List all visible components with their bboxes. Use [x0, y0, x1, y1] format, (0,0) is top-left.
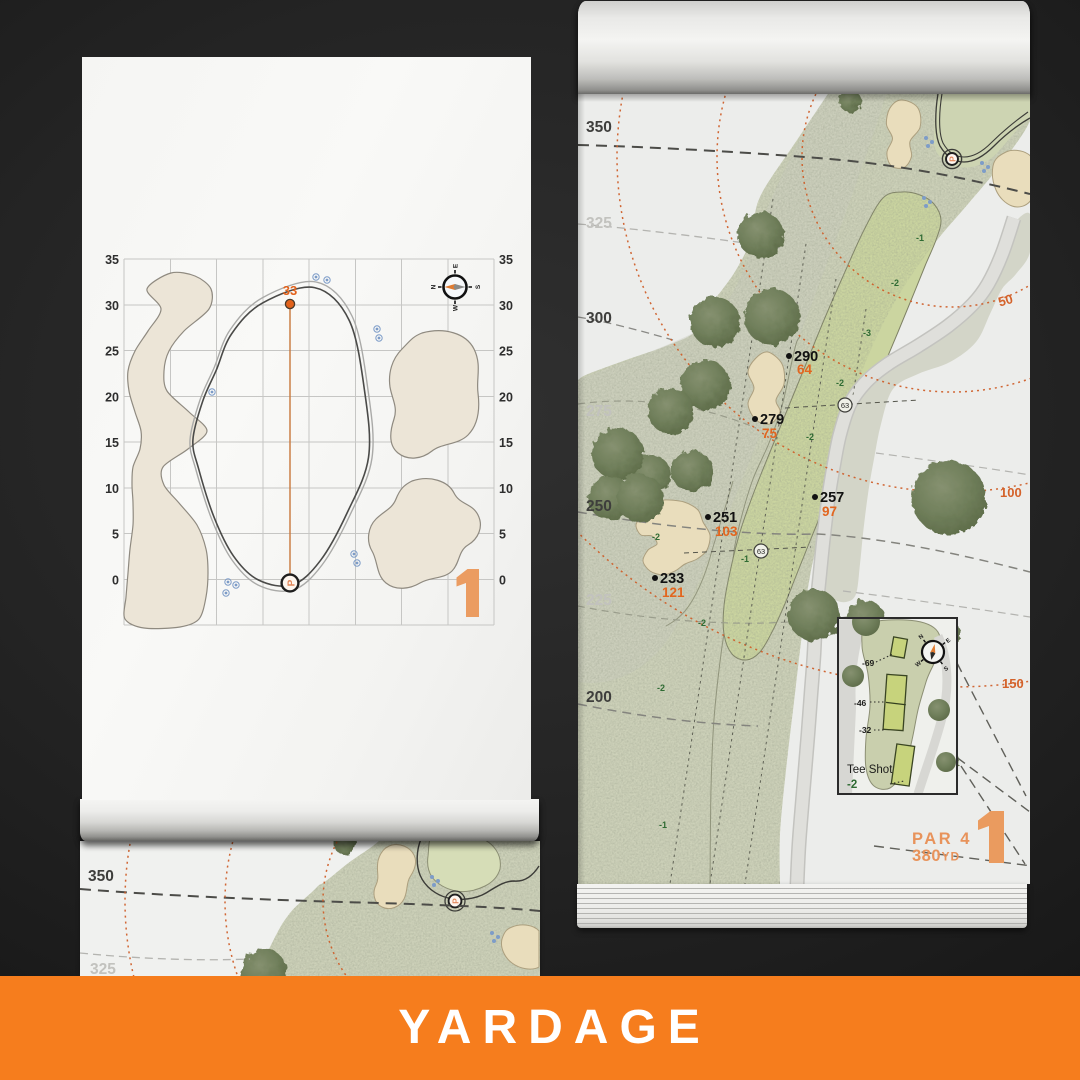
svg-text:20: 20 — [105, 390, 119, 404]
svg-text:10: 10 — [499, 482, 513, 496]
svg-text:35: 35 — [499, 253, 513, 267]
svg-text:63: 63 — [757, 547, 765, 556]
svg-text:200: 200 — [586, 689, 612, 706]
svg-text:-2: -2 — [652, 532, 660, 542]
svg-text:121: 121 — [662, 585, 685, 600]
svg-text:15: 15 — [499, 436, 513, 450]
svg-text:-2: -2 — [891, 278, 899, 288]
svg-text:33: 33 — [283, 283, 297, 298]
svg-text:103: 103 — [715, 524, 738, 539]
svg-text:75: 75 — [762, 426, 778, 441]
svg-text:-1: -1 — [659, 820, 667, 830]
svg-text:-2: -2 — [657, 683, 665, 693]
svg-text:150: 150 — [1002, 676, 1024, 691]
svg-text:-2: -2 — [847, 779, 857, 791]
svg-text:-1: -1 — [741, 554, 749, 564]
svg-text:100: 100 — [1000, 485, 1022, 500]
svg-text:-2: -2 — [806, 432, 814, 442]
svg-text:25: 25 — [499, 345, 513, 359]
svg-text:5: 5 — [112, 528, 119, 542]
svg-text:E: E — [452, 263, 459, 268]
svg-text:35: 35 — [105, 253, 119, 267]
svg-text:-1: -1 — [916, 233, 924, 243]
svg-text:-2: -2 — [698, 618, 706, 628]
svg-text:W: W — [452, 304, 459, 311]
svg-text:Tee Shot: Tee Shot — [847, 764, 893, 776]
svg-text:-69: -69 — [862, 658, 875, 668]
svg-text:50: 50 — [996, 291, 1014, 309]
svg-text:-32: -32 — [859, 725, 872, 735]
svg-text:15: 15 — [105, 436, 119, 450]
svg-text:P: P — [287, 579, 298, 586]
svg-text:5: 5 — [499, 528, 506, 542]
svg-text:20: 20 — [499, 390, 513, 404]
svg-text:S: S — [475, 284, 482, 289]
svg-text:97: 97 — [822, 504, 837, 519]
svg-text:250: 250 — [586, 498, 612, 515]
svg-text:N: N — [431, 284, 438, 289]
svg-text:30: 30 — [105, 299, 119, 313]
svg-text:0: 0 — [112, 573, 119, 587]
svg-text:325: 325 — [586, 215, 612, 232]
svg-text:350: 350 — [586, 119, 612, 136]
svg-text:PAR 4: PAR 4 — [912, 830, 972, 848]
svg-text:P: P — [451, 898, 461, 904]
svg-text:P: P — [948, 156, 958, 162]
svg-text:30: 30 — [499, 299, 513, 313]
svg-text:-2: -2 — [836, 378, 844, 388]
svg-text:380YD: 380YD — [912, 847, 960, 865]
svg-text:25: 25 — [105, 345, 119, 359]
svg-text:0: 0 — [499, 573, 506, 587]
svg-text:63: 63 — [841, 401, 849, 410]
svg-text:10: 10 — [105, 482, 119, 496]
svg-text:64: 64 — [797, 362, 813, 377]
svg-text:225: 225 — [586, 592, 612, 609]
svg-text:325: 325 — [90, 961, 116, 976]
svg-text:350: 350 — [88, 868, 114, 885]
svg-text:-46: -46 — [854, 698, 867, 708]
svg-text:275: 275 — [586, 403, 612, 420]
svg-text:300: 300 — [586, 310, 612, 327]
svg-text:-3: -3 — [863, 328, 871, 338]
